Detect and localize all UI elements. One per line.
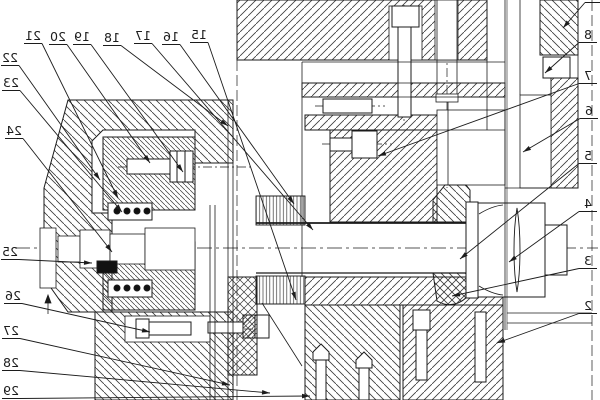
- callout-2: 2: [497, 298, 597, 343]
- technical-drawing-svg: 21201918171615222324252627282998765432: [0, 0, 600, 400]
- callout-label: 4: [584, 196, 592, 211]
- screw-shank-top: [398, 27, 411, 117]
- callout-label: 20: [50, 29, 66, 44]
- washer: [466, 202, 478, 298]
- mold-plates: [44, 0, 578, 400]
- callout-label: 3: [584, 253, 592, 268]
- callout-label: 26: [5, 288, 21, 303]
- callout-label: 29: [3, 383, 19, 398]
- dowel-pin: [323, 99, 372, 113]
- leader-arrowhead: [262, 390, 270, 395]
- leader-line: [208, 43, 296, 301]
- cavity-bolt-head: [352, 131, 377, 158]
- callout-label: 23: [3, 75, 19, 90]
- callout-label: 9: [590, 0, 598, 2]
- shaft-end-cap: [545, 225, 567, 275]
- return-spring-upper: [108, 203, 152, 220]
- latch-block: [433, 185, 470, 222]
- screw-head-top: [392, 6, 419, 27]
- clip-bracket: [40, 228, 56, 288]
- callout-label: 18: [104, 30, 120, 45]
- thread-upper: [256, 196, 305, 225]
- socket-screw-head: [243, 315, 257, 338]
- callout-label: 6: [585, 103, 593, 118]
- right-top-block: [540, 0, 578, 55]
- callout-label: 8: [584, 27, 592, 42]
- leader-line: [497, 314, 579, 344]
- hex-bolt-head: [170, 151, 193, 182]
- callout-label: 24: [6, 123, 22, 138]
- callout-label: 2: [584, 298, 592, 313]
- guide-bushing: [520, 95, 551, 188]
- callout-label: 28: [3, 355, 19, 370]
- callout-label: 17: [135, 28, 151, 43]
- thread-lower: [256, 276, 305, 304]
- callout-label: 22: [2, 50, 18, 65]
- return-spring-lower: [108, 280, 152, 297]
- lower-bolt: [149, 322, 191, 335]
- callout-label: 19: [74, 29, 90, 44]
- drawing-canvas: 21201918171615222324252627282998765432: [0, 0, 600, 400]
- seal: [97, 261, 117, 273]
- sprue-bush: [145, 228, 195, 270]
- callout-label: 21: [25, 28, 41, 43]
- right-bolt-head: [543, 57, 570, 78]
- callout-label: 25: [2, 244, 18, 259]
- callout-label: 27: [3, 323, 19, 338]
- callout-label: 15: [191, 27, 207, 42]
- callout-label: 16: [163, 29, 179, 44]
- bottom-bolt-1: [416, 330, 427, 380]
- bottom-bolt-2: [475, 312, 486, 382]
- callout-label: 5: [584, 148, 592, 163]
- callout-label: 7: [584, 68, 592, 83]
